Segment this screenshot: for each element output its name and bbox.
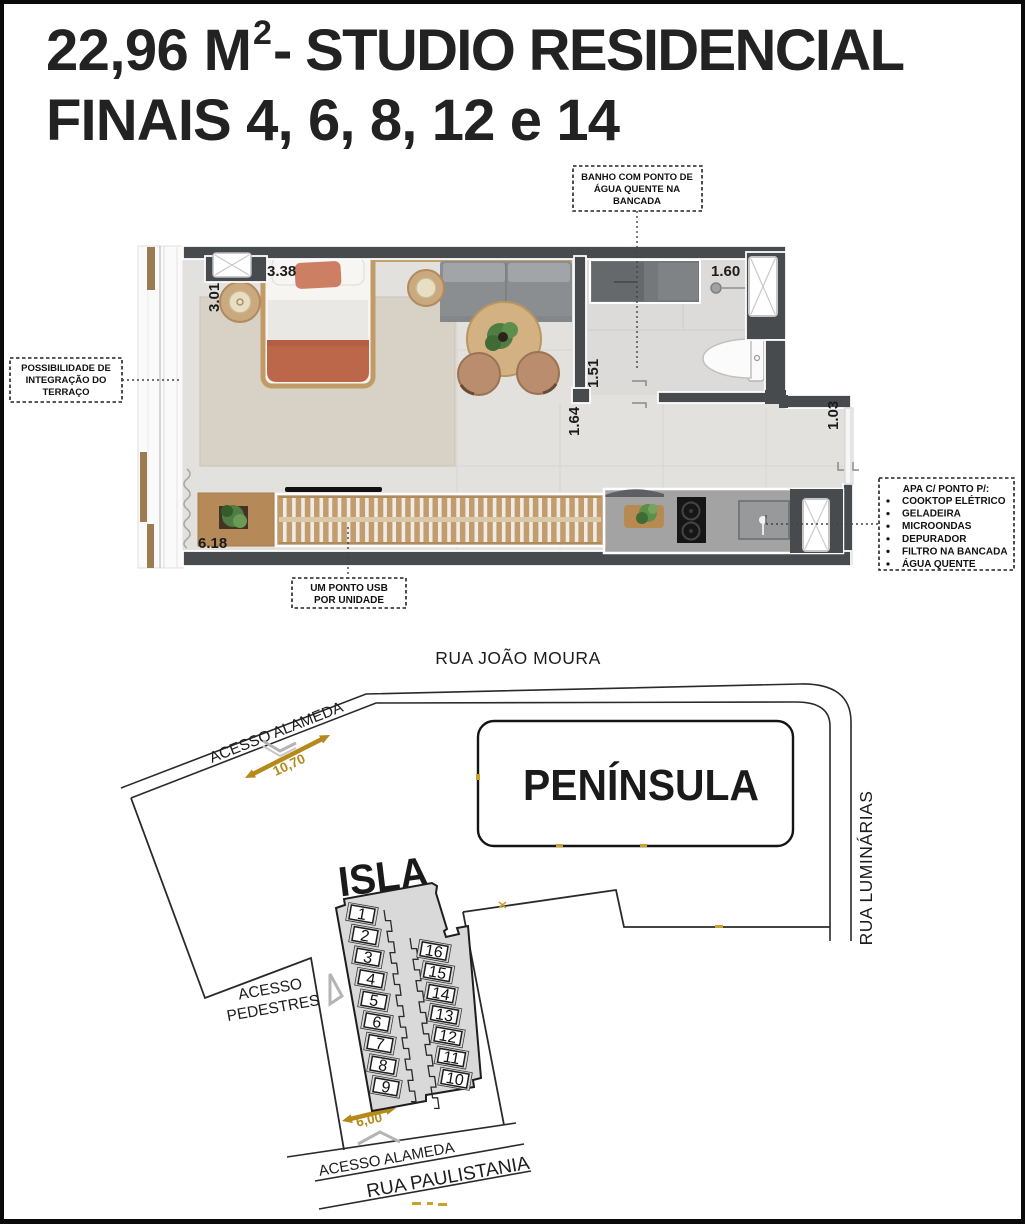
svg-text:FILTRO NA BANCADA: FILTRO NA BANCADA	[902, 546, 1008, 557]
svg-text:1.03: 1.03	[825, 401, 842, 430]
svg-text:1.64: 1.64	[566, 406, 583, 436]
svg-text:11: 11	[442, 1049, 461, 1069]
svg-text:TERRAÇO: TERRAÇO	[43, 387, 90, 398]
svg-text:1.60: 1.60	[711, 263, 740, 280]
svg-text:- STUDIO RESIDENCIAL: - STUDIO RESIDENCIAL	[273, 18, 905, 83]
svg-text:GELADEIRA: GELADEIRA	[902, 509, 961, 520]
svg-text:POR UNIDADE: POR UNIDADE	[314, 595, 384, 606]
svg-text:MICROONDAS: MICROONDAS	[902, 521, 972, 532]
svg-text:16: 16	[424, 942, 445, 962]
svg-text:INTEGRAÇÃO DO: INTEGRAÇÃO DO	[26, 375, 107, 386]
svg-text:RUA LUMINÁRIAS: RUA LUMINÁRIAS	[856, 791, 876, 946]
svg-text:14: 14	[431, 985, 452, 1005]
svg-text:3.01: 3.01	[206, 283, 223, 312]
svg-text:12: 12	[438, 1027, 459, 1047]
svg-text:13: 13	[434, 1006, 455, 1026]
svg-text:PENÍNSULA: PENÍNSULA	[523, 760, 759, 810]
svg-text:ÁGUA QUENTE: ÁGUA QUENTE	[902, 557, 976, 570]
svg-text:BANCADA: BANCADA	[613, 196, 661, 207]
svg-text:COOKTOP ELÉTRICO: COOKTOP ELÉTRICO	[902, 494, 1006, 507]
svg-text:10: 10	[445, 1070, 466, 1090]
svg-text:22,96 M: 22,96 M	[46, 18, 252, 83]
svg-text:UM PONTO USB: UM PONTO USB	[310, 583, 388, 594]
svg-text:FINAIS 4, 6, 8, 12 e 14: FINAIS 4, 6, 8, 12 e 14	[46, 88, 620, 153]
svg-text:1.51: 1.51	[585, 359, 602, 388]
svg-text:15: 15	[427, 963, 448, 983]
svg-text:POSSIBILIDADE DE: POSSIBILIDADE DE	[21, 363, 111, 374]
svg-text:ÁGUA QUENTE NA: ÁGUA QUENTE NA	[594, 184, 680, 195]
svg-text:BANHO COM PONTO DE: BANHO COM PONTO DE	[581, 172, 693, 183]
svg-text:APA C/ PONTO P/:: APA C/ PONTO P/:	[903, 484, 990, 495]
svg-text:DEPURADOR: DEPURADOR	[902, 534, 967, 545]
svg-text:6.18: 6.18	[198, 535, 227, 552]
svg-text:3.38: 3.38	[267, 263, 296, 280]
svg-text:2: 2	[253, 14, 272, 52]
svg-text:RUA JOÃO MOURA: RUA JOÃO MOURA	[435, 647, 601, 668]
